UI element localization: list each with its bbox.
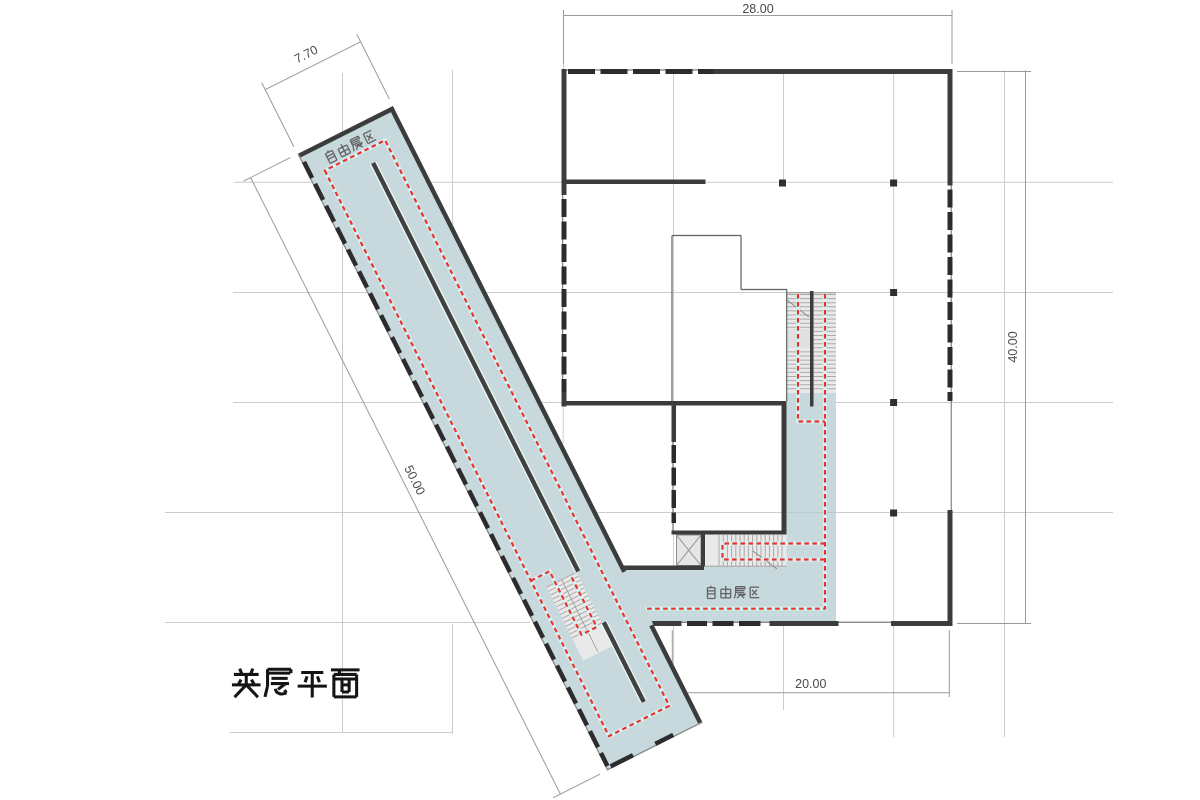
svg-text:20.00: 20.00: [795, 677, 826, 691]
svg-text:28.00: 28.00: [742, 2, 773, 16]
svg-text:40.00: 40.00: [1006, 331, 1020, 362]
